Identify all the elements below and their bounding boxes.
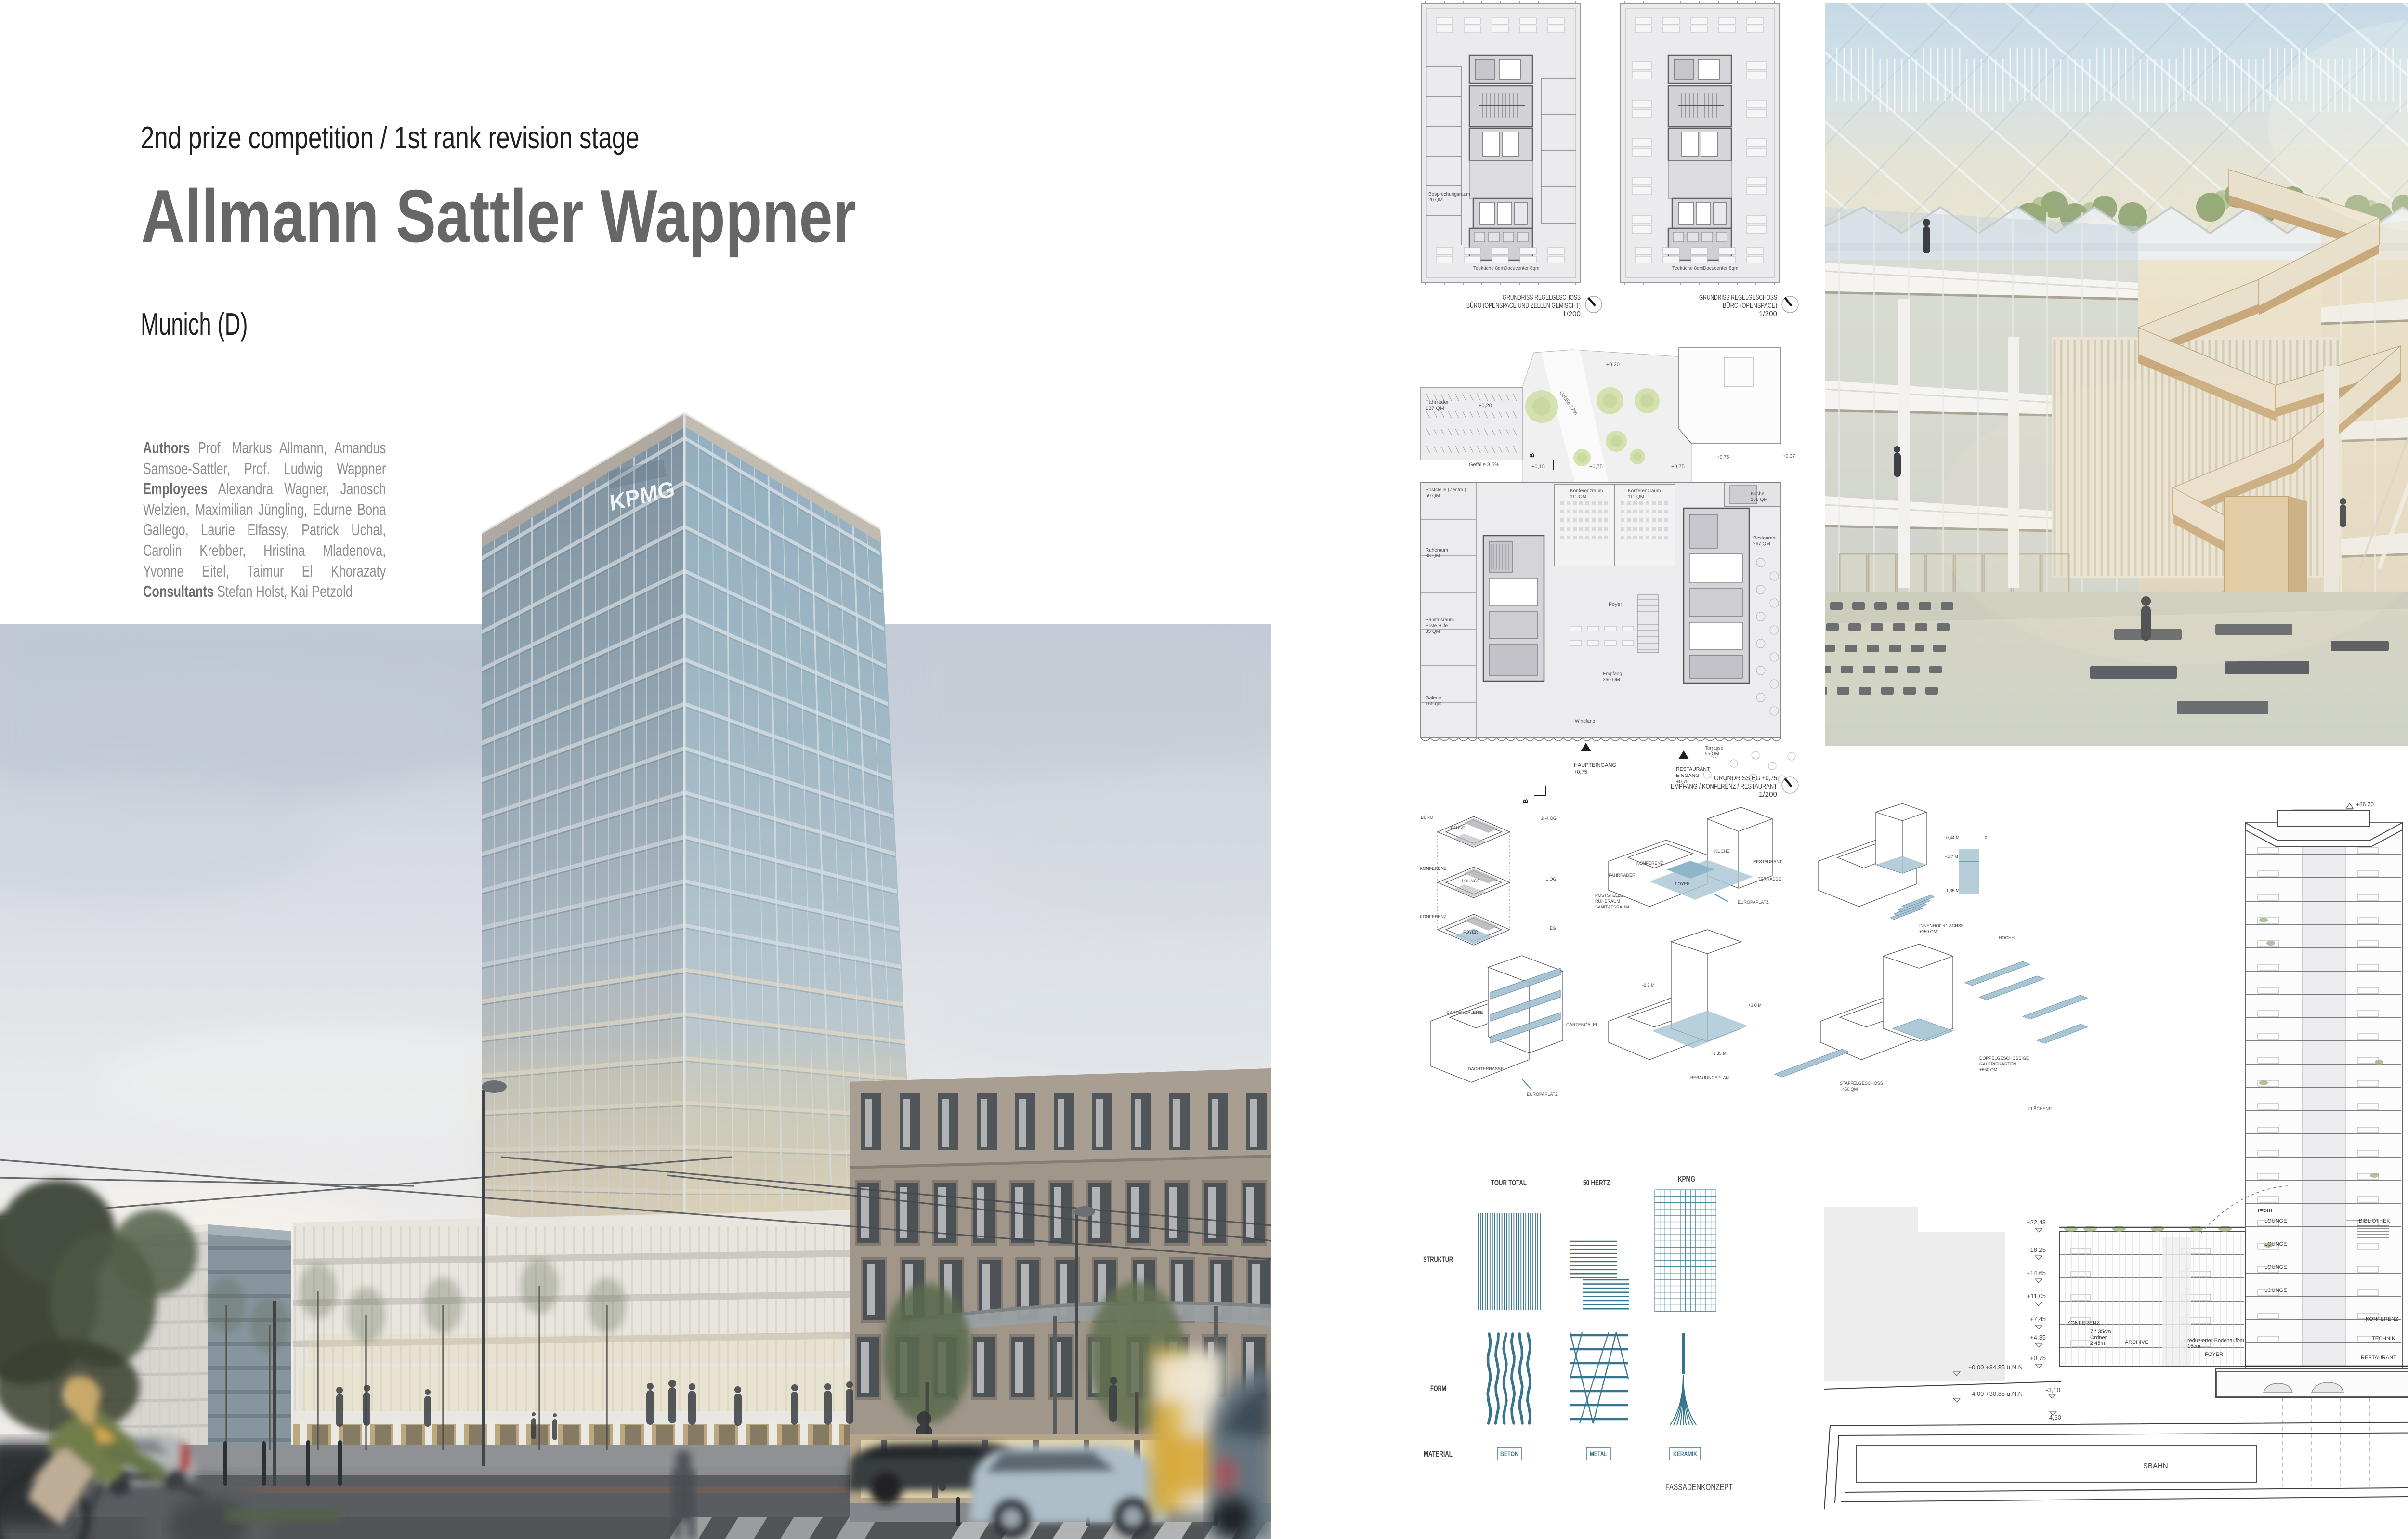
svg-text:B: B xyxy=(1522,799,1529,803)
svg-text:2,45m: 2,45m xyxy=(2090,1341,2105,1346)
svg-text:1/200: 1/200 xyxy=(1759,310,1777,318)
svg-text:reduzierter Bodenaufbau: reduzierter Bodenaufbau xyxy=(2187,1338,2246,1343)
svg-text:KONFERENZ: KONFERENZ xyxy=(1420,914,1447,919)
svg-text:+0,75: +0,75 xyxy=(2030,1355,2046,1362)
svg-text:FOYER: FOYER xyxy=(1463,930,1479,934)
svg-text:±0,00 +34.85 ü.N.N: ±0,00 +34.85 ü.N.N xyxy=(1968,1364,2023,1371)
svg-text:KONFERENZ: KONFERENZ xyxy=(1420,866,1447,871)
svg-text:+0,20: +0,20 xyxy=(1606,362,1620,368)
svg-text:137 QM: 137 QM xyxy=(1426,406,1444,411)
svg-text:33 QM: 33 QM xyxy=(1426,553,1440,559)
svg-text:RESTAURANT: RESTAURANT xyxy=(1753,859,1782,864)
svg-text:TERRASSE: TERRASSE xyxy=(1758,877,1781,881)
svg-text:EUROPAPLATZ: EUROPAPLATZ xyxy=(1527,1092,1558,1097)
svg-text:20 QM: 20 QM xyxy=(1428,197,1443,203)
svg-text:GRUNDRISS EG +0,75: GRUNDRISS EG +0,75 xyxy=(1714,774,1777,782)
svg-text:KERAMIK: KERAMIK xyxy=(1673,1450,1697,1458)
svg-text:+14,65: +14,65 xyxy=(2027,1269,2046,1276)
svg-text:Foyer: Foyer xyxy=(1609,602,1622,607)
svg-text:EUROPAPLATZ: EUROPAPLATZ xyxy=(1738,900,1769,905)
svg-text:LOUNGE: LOUNGE xyxy=(2264,1288,2287,1293)
svg-text:+0,37: +0,37 xyxy=(1783,454,1795,459)
svg-text:RUHERAUM: RUHERAUM xyxy=(1595,899,1620,904)
svg-text:EMPFANG / KONFERENZ / RESTAURA: EMPFANG / KONFERENZ / RESTAURANT xyxy=(1671,782,1777,790)
svg-text:50 HERTZ: 50 HERTZ xyxy=(1583,1178,1610,1187)
svg-text:360 QM: 360 QM xyxy=(1603,677,1620,683)
svg-text:BÜRO: BÜRO xyxy=(1421,815,1433,820)
svg-text:GARTENGALERIE: GARTENGALERIE xyxy=(1446,1010,1483,1015)
svg-text:+86.20: +86.20 xyxy=(2356,801,2374,808)
svg-text:+0,20: +0,20 xyxy=(1479,403,1492,408)
svg-text:+150 QM: +150 QM xyxy=(1919,929,1937,934)
svg-text:-4,60: -4,60 xyxy=(2047,1414,2061,1421)
svg-text:+1,35 M: +1,35 M xyxy=(1711,1051,1727,1056)
svg-text:HOCHH: HOCHH xyxy=(1999,935,2015,940)
svg-text:HAUPTEINGANG: HAUPTEINGANG xyxy=(1574,763,1616,768)
svg-text:+11,05: +11,05 xyxy=(2027,1292,2046,1300)
svg-text:+18,25: +18,25 xyxy=(2027,1246,2046,1253)
svg-text:Gefälle 3,5%: Gefälle 3,5% xyxy=(1469,462,1499,468)
svg-text:PAUSE: PAUSE xyxy=(1451,826,1465,830)
svg-text:+1,0 M: +1,0 M xyxy=(1748,1003,1762,1008)
svg-text:Erste Hilfe: Erste Hilfe xyxy=(1426,623,1448,629)
svg-text:LOUNGE: LOUNGE xyxy=(2264,1241,2287,1247)
svg-text:Besprechungsraum: Besprechungsraum xyxy=(1428,192,1470,197)
svg-text:B: B xyxy=(1528,453,1535,458)
svg-text:-2,7 M: -2,7 M xyxy=(1642,983,1655,987)
svg-text:LOUNGE: LOUNGE xyxy=(2264,1264,2287,1270)
svg-text:DACHTERRASSE: DACHTERRASSE xyxy=(1468,1066,1504,1071)
svg-text:GRUNDRISS REGELGESCHOSS: GRUNDRISS REGELGESCHOSS xyxy=(1699,293,1777,302)
svg-text:Fahrräder: Fahrräder xyxy=(1426,399,1449,405)
svg-text:GRUNDRISS REGELGESCHOSS: GRUNDRISS REGELGESCHOSS xyxy=(1503,293,1581,302)
svg-text:RESTAURANT: RESTAURANT xyxy=(1676,766,1710,772)
svg-text:FOYER: FOYER xyxy=(1675,881,1690,886)
svg-text:+4,7 M: +4,7 M xyxy=(1945,855,1958,859)
svg-text:TOUR TOTAL: TOUR TOTAL xyxy=(1491,1178,1527,1187)
svg-text:BIBLIOTHEK: BIBLIOTHEK xyxy=(2359,1218,2390,1224)
svg-text:KPMG: KPMG xyxy=(1678,1174,1695,1184)
svg-text:+0,15: +0,15 xyxy=(1531,464,1545,470)
svg-text:Teeküche 8qm: Teeküche 8qm xyxy=(1473,266,1505,271)
svg-text:+0,75: +0,75 xyxy=(1589,464,1603,470)
svg-text:165 qm: 165 qm xyxy=(1426,701,1441,707)
svg-text:FAHRRÄDER: FAHRRÄDER xyxy=(1609,873,1636,878)
svg-text:-4,00 +30,85 ü.N.N: -4,00 +30,85 ü.N.N xyxy=(1970,1390,2023,1397)
svg-text:BÜRO (OPENSPACE): BÜRO (OPENSPACE) xyxy=(1723,301,1777,310)
svg-text:Konferenzraum: Konferenzraum xyxy=(1570,488,1603,494)
svg-text:Ruheraum: Ruheraum xyxy=(1426,548,1448,553)
svg-text:STRUKTUR: STRUKTUR xyxy=(1423,1255,1453,1264)
svg-text:BETON: BETON xyxy=(1500,1450,1518,1458)
svg-text:-3,10: -3,10 xyxy=(2046,1386,2060,1394)
svg-text:LOUNGE: LOUNGE xyxy=(2264,1218,2287,1224)
svg-text:Docucenter 8qm: Docucenter 8qm xyxy=(1504,266,1539,271)
svg-text:Poststelle (Zentral): Poststelle (Zentral) xyxy=(1426,487,1466,493)
svg-text:GARTENGALEI: GARTENGALEI xyxy=(1566,1022,1597,1027)
svg-text:POSTSTELLE: POSTSTELLE xyxy=(1595,893,1623,898)
svg-text:TECHNIK: TECHNIK xyxy=(2372,1336,2395,1342)
svg-text:KONFERENZ: KONFERENZ xyxy=(1636,861,1663,866)
svg-text:33 QM: 33 QM xyxy=(1426,629,1440,634)
svg-text:-0,44 M: -0,44 M xyxy=(1945,835,1960,840)
svg-text:2.-4.OG: 2.-4.OG xyxy=(1541,816,1557,821)
svg-text:-0,: -0, xyxy=(1983,835,1989,840)
svg-text:ARCHIVE: ARCHIVE xyxy=(2125,1340,2148,1345)
svg-text:+0,75: +0,75 xyxy=(1574,769,1587,775)
svg-text:RESTAURANT: RESTAURANT xyxy=(2361,1355,2396,1361)
svg-text:DOPPELGESCHOSSIGE: DOPPELGESCHOSSIGE xyxy=(1979,1056,2029,1061)
svg-text:+550 QM: +550 QM xyxy=(1979,1067,1997,1072)
svg-text:SANITÄTSRAUM: SANITÄTSRAUM xyxy=(1595,905,1629,909)
svg-text:BEBAUUNGSPLAN: BEBAUUNGSPLAN xyxy=(1690,1075,1729,1080)
svg-text:FASSADENKONZEPT: FASSADENKONZEPT xyxy=(1665,1482,1733,1493)
svg-text:1.OG: 1.OG xyxy=(1546,877,1557,881)
svg-text:KONFERENZ: KONFERENZ xyxy=(2067,1320,2100,1326)
svg-text:METAL: METAL xyxy=(1590,1450,1607,1458)
svg-text:15cm: 15cm xyxy=(2187,1343,2200,1349)
svg-text:BÜRO (OPENSPACE UND ZELLEN GEM: BÜRO (OPENSPACE UND ZELLEN GEMISCHT) xyxy=(1466,301,1581,310)
svg-text:Sanitätsraum: Sanitätsraum xyxy=(1426,618,1454,623)
svg-text:FLÄCHENP: FLÄCHENP xyxy=(2028,1106,2052,1111)
svg-text:KONFERENZ: KONFERENZ xyxy=(2366,1316,2398,1322)
svg-text:Teeküche 8qm: Teeküche 8qm xyxy=(1672,266,1703,271)
svg-text:Küche: Küche xyxy=(1751,491,1765,497)
svg-text:FOYER: FOYER xyxy=(2205,1352,2223,1357)
svg-text:+7,45: +7,45 xyxy=(2030,1315,2046,1323)
svg-text:+22,43: +22,43 xyxy=(2027,1219,2046,1226)
svg-text:EG: EG xyxy=(1550,926,1556,931)
svg-text:SBAHN: SBAHN xyxy=(2143,1462,2168,1470)
svg-text:KÜCHE: KÜCHE xyxy=(1714,849,1730,854)
svg-text:55 QM: 55 QM xyxy=(1705,751,1719,757)
svg-text:r=5m: r=5m xyxy=(2258,1206,2272,1213)
svg-text:111 QM: 111 QM xyxy=(1628,494,1644,500)
svg-text:7 * 35cm: 7 * 35cm xyxy=(2090,1329,2111,1335)
svg-text:+4,35: +4,35 xyxy=(2030,1334,2046,1341)
svg-text:EINGANG: EINGANG xyxy=(1676,773,1699,778)
svg-text:111 QM: 111 QM xyxy=(1570,494,1586,500)
svg-text:+0,75: +0,75 xyxy=(1717,455,1729,460)
svg-text:59 QM: 59 QM xyxy=(1426,493,1440,499)
svg-text:Konferenzraum: Konferenzraum xyxy=(1628,488,1661,494)
svg-text:267 QM: 267 QM xyxy=(1753,541,1770,547)
svg-text:+0,75: +0,75 xyxy=(1671,464,1685,470)
svg-text:Galerie: Galerie xyxy=(1426,696,1441,701)
svg-text:1/200: 1/200 xyxy=(1562,310,1581,318)
svg-text:STAFFELGESCHOSS: STAFFELGESCHOSS xyxy=(1840,1081,1883,1086)
svg-text:FORM: FORM xyxy=(1430,1384,1446,1393)
svg-text:LOUNGE: LOUNGE xyxy=(1462,879,1480,883)
svg-text:1/200: 1/200 xyxy=(1759,790,1777,799)
svg-text:Empfang: Empfang xyxy=(1603,671,1622,677)
svg-text:-1,35 M: -1,35 M xyxy=(1945,888,1960,893)
svg-text:MATERIAL: MATERIAL xyxy=(1424,1449,1453,1459)
svg-text:Ordner: Ordner xyxy=(2090,1335,2107,1341)
svg-text:Restaurant: Restaurant xyxy=(1753,536,1777,541)
svg-text:Windfang: Windfang xyxy=(1575,719,1595,724)
svg-text:+450 QM: +450 QM xyxy=(1840,1087,1858,1092)
svg-text:155 QM: 155 QM xyxy=(1751,497,1768,502)
svg-text:GALERIEGÄRTEN: GALERIEGÄRTEN xyxy=(1979,1062,2016,1066)
svg-text:INNENHOF +1 ACHSE: INNENHOF +1 ACHSE xyxy=(1919,923,1964,928)
svg-text:Docucenter 8qm: Docucenter 8qm xyxy=(1703,266,1738,271)
